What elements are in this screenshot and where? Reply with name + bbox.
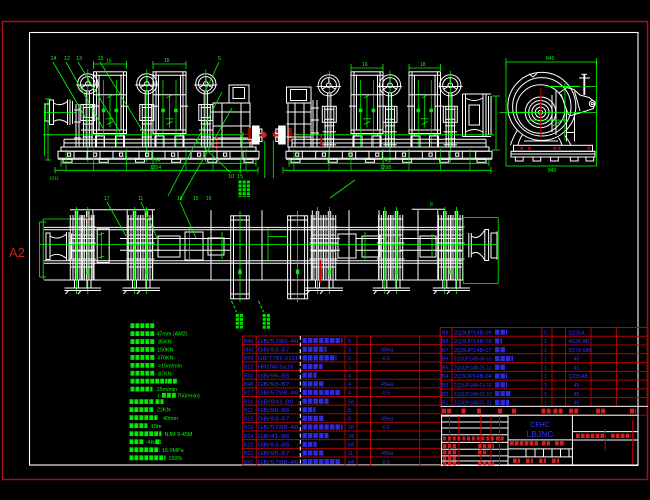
svg-text:2Q3UP14B-06-16: 2Q3UP14B-06-16 — [454, 357, 492, 363]
svg-text:45Ha: 45Ha — [381, 451, 394, 457]
svg-text:13: 13 — [76, 56, 82, 62]
svg-text:GB/5788-46: GB/5788-46 — [258, 391, 299, 397]
svg-text:GB/96-86: GB/96-86 — [258, 408, 290, 414]
svg-text:45: 45 — [574, 392, 580, 398]
svg-text:GB/T781-2161: GB/T781-2161 — [258, 356, 299, 362]
svg-text:1: 1 — [544, 339, 547, 345]
svg-text:1: 1 — [544, 365, 547, 371]
svg-text:794: 794 — [152, 158, 161, 164]
svg-text:1: 1 — [544, 348, 547, 354]
svg-text:M42: M42 — [244, 347, 254, 353]
svg-text:B9: B9 — [442, 330, 448, 336]
svg-text:-0.5: -0.5 — [381, 460, 390, 466]
svg-text:4: 4 — [348, 373, 351, 379]
svg-text:GB/96-85: GB/96-85 — [258, 373, 290, 379]
svg-text:2Q3UP14B-05-10: 2Q3UP14B-05-10 — [454, 365, 492, 371]
svg-text:3: 3 — [544, 383, 547, 389]
svg-text:5: 5 — [348, 339, 351, 345]
svg-text:5: 5 — [348, 356, 351, 362]
svg-text:GB/93-87: GB/93-87 — [258, 382, 290, 388]
svg-text:Q235AB: Q235AB — [569, 374, 589, 380]
svg-text:15: 15 — [164, 58, 170, 64]
svg-text:45: 45 — [574, 383, 580, 389]
svg-text:B11: B11 — [244, 408, 253, 414]
svg-text:5a: 5a — [348, 399, 354, 405]
svg-text:-0.5: -0.5 — [381, 391, 390, 397]
svg-text:45Ha: 45Ha — [381, 347, 394, 353]
svg-text:-0.5: -0.5 — [381, 425, 390, 431]
svg-text:15: 15 — [237, 174, 243, 180]
svg-text:22KN: 22KN — [157, 408, 171, 414]
svg-text:1: 1 — [544, 357, 547, 363]
svg-text:GB/5780-46: GB/5780-46 — [258, 339, 299, 345]
svg-text:45Ha: 45Ha — [381, 417, 394, 423]
svg-text:1298: 1298 — [380, 165, 391, 171]
svg-text:15: 15 — [193, 196, 199, 202]
svg-text:15m/min: 15m/min — [157, 387, 178, 393]
svg-text:B45: B45 — [244, 339, 253, 345]
svg-text:B6: B6 — [442, 357, 448, 363]
svg-text:470KN: 470KN — [157, 356, 174, 362]
svg-text:18: 18 — [177, 196, 183, 202]
svg-text:16: 16 — [206, 196, 212, 202]
svg-text:A2: A2 — [9, 245, 25, 260]
svg-text:16: 16 — [362, 62, 368, 68]
svg-text:B2: B2 — [442, 392, 448, 398]
svg-text:8: 8 — [348, 408, 351, 414]
svg-text:18: 18 — [420, 62, 426, 68]
svg-text:2Q3UP14B-01-01: 2Q3UP14B-01-01 — [454, 401, 492, 407]
svg-text:2: 2 — [544, 392, 547, 398]
svg-text:840: 840 — [548, 168, 557, 174]
svg-text:GB/93-87: GB/93-87 — [258, 417, 290, 423]
svg-text:B7: B7 — [442, 348, 448, 354]
svg-text:1: 1 — [348, 365, 351, 371]
svg-text:NJM 9-45M: NJM 9-45M — [165, 432, 193, 438]
svg-text:GB/95-87: GB/95-87 — [258, 451, 290, 457]
svg-text:D578-58B: D578-58B — [569, 348, 593, 354]
svg-text:85KN: 85KN — [158, 340, 172, 346]
svg-text:>15m/min: >15m/min — [158, 363, 182, 369]
svg-text:GB/841.86: GB/841.86 — [258, 399, 294, 405]
svg-text:150%: 150% — [169, 456, 183, 462]
svg-text:B4: B4 — [442, 374, 448, 380]
svg-text:-0.5: -0.5 — [381, 356, 390, 362]
svg-text:2Q3UP14B-02-10: 2Q3UP14B-02-10 — [454, 392, 492, 398]
svg-text:16.0MPa: 16.0MPa — [162, 448, 184, 454]
svg-text:b4: b4 — [348, 443, 354, 449]
svg-text:45: 45 — [574, 401, 580, 407]
svg-text:12: 12 — [64, 56, 70, 62]
svg-text:45Ha: 45Ha — [381, 382, 394, 388]
svg-text:2Q3UP14B-08: 2Q3UP14B-08 — [454, 339, 492, 345]
svg-text:1354: 1354 — [150, 165, 161, 171]
svg-text:2Q3UP14B-09: 2Q3UP14B-09 — [454, 330, 492, 336]
svg-text:845: 845 — [546, 56, 555, 62]
svg-text:2Q3UP14B-04: 2Q3UP14B-04 — [454, 374, 492, 380]
svg-text:B14: B14 — [244, 434, 253, 440]
svg-text:B16: B16 — [244, 399, 253, 405]
svg-text:15: 15 — [98, 56, 104, 62]
svg-text:18: 18 — [348, 425, 354, 431]
svg-text:GB/5788-46: GB/5788-46 — [258, 425, 299, 431]
svg-text:1: 1 — [544, 401, 547, 407]
svg-text:10: 10 — [228, 174, 234, 180]
svg-text:B43: B43 — [244, 356, 253, 362]
svg-text:GB/41-86: GB/41-86 — [258, 434, 290, 440]
svg-text:45: 45 — [574, 357, 580, 363]
svg-text:87KN: 87KN — [158, 371, 172, 377]
svg-text:B12: B12 — [244, 365, 253, 371]
svg-text:b4: b4 — [348, 460, 354, 466]
svg-text:2Q3UP14B-03-16: 2Q3UP14B-03-16 — [454, 383, 492, 389]
svg-text:4: 4 — [348, 391, 351, 397]
svg-text:1: 1 — [56, 176, 59, 181]
svg-text:47mm (AM2): 47mm (AM2) — [156, 332, 187, 338]
svg-text:5: 5 — [218, 56, 221, 62]
svg-text:45: 45 — [574, 365, 580, 371]
svg-text:14: 14 — [51, 56, 57, 62]
svg-text:B10: B10 — [244, 373, 253, 379]
svg-text:3: 3 — [348, 347, 351, 353]
svg-text:(: ( — [158, 393, 160, 399]
svg-text:8: 8 — [348, 417, 351, 423]
svg-text:HRDW-5a16: HRDW-5a16 — [258, 365, 294, 371]
svg-text:8: 8 — [430, 202, 433, 208]
svg-text:Q235A: Q235A — [569, 330, 586, 336]
svg-text:2Q3UP14B-07: 2Q3UP14B-07 — [454, 348, 492, 354]
svg-text:GB/93-85: GB/93-85 — [258, 443, 290, 449]
svg-text:B13: B13 — [244, 443, 253, 449]
svg-text:15: 15 — [106, 59, 112, 65]
svg-text:2L: 2L — [348, 451, 354, 457]
svg-text:B19: B19 — [244, 425, 253, 431]
svg-text:B8: B8 — [442, 339, 448, 345]
svg-text:B1: B1 — [442, 401, 448, 407]
svg-text:GB/5788-46: GB/5788-46 — [258, 460, 299, 466]
svg-text:11: 11 — [138, 196, 143, 202]
svg-text:4G36 AB: 4G36 AB — [569, 339, 590, 345]
svg-text:24: 24 — [348, 434, 354, 440]
svg-text:17: 17 — [104, 196, 110, 202]
svg-text:40mm: 40mm — [163, 416, 178, 422]
svg-text:B15: B15 — [244, 417, 253, 423]
svg-text:4: 4 — [348, 382, 351, 388]
svg-text:B48: B48 — [244, 382, 253, 388]
svg-text:5: 5 — [544, 330, 547, 336]
svg-text:B3: B3 — [442, 383, 448, 389]
svg-text:GB/93-87: GB/93-87 — [258, 347, 290, 353]
svg-text:B41: B41 — [244, 460, 253, 466]
svg-text:B12: B12 — [244, 451, 253, 457]
svg-text:15m: 15m — [151, 424, 162, 430]
svg-text:CFHC: CFHC — [530, 422, 549, 429]
svg-text:150KN: 150KN — [157, 348, 174, 354]
svg-text:B5: B5 — [442, 365, 448, 371]
svg-text:LBJNC: LBJNC — [527, 429, 554, 439]
svg-text:750r/min): 750r/min) — [177, 393, 200, 399]
svg-text:B17: B17 — [244, 391, 253, 397]
svg-text:745: 745 — [382, 158, 391, 164]
svg-text:1: 1 — [544, 374, 547, 380]
svg-text:-4Km1: -4Km1 — [146, 440, 162, 446]
